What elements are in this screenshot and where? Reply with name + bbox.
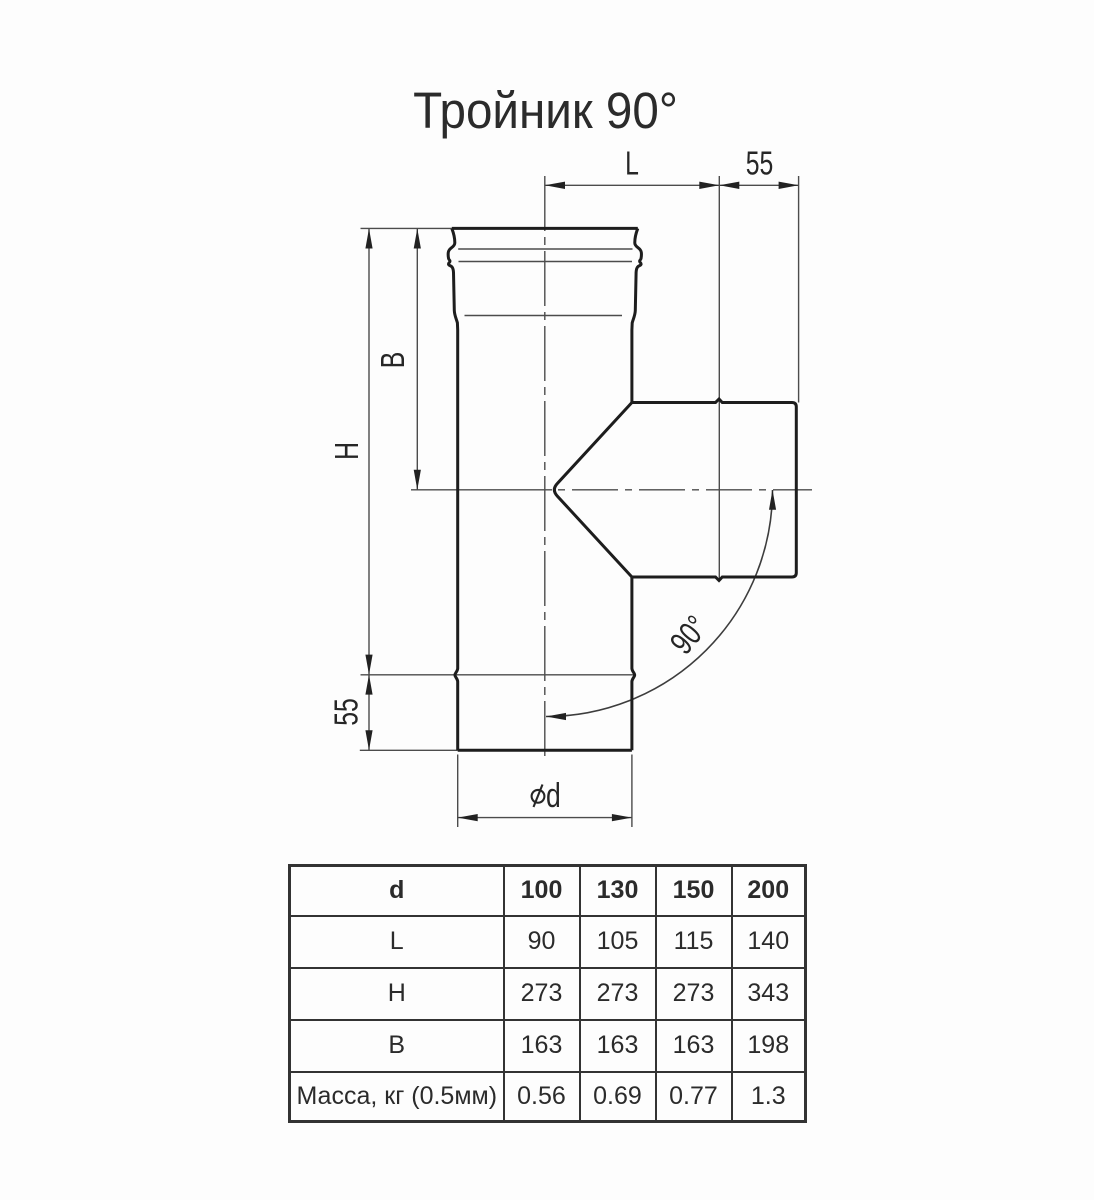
svg-text:L: L [625,146,639,182]
svg-text:B: B [376,352,412,369]
svg-text:55: 55 [329,698,365,726]
svg-text:H: H [330,442,366,460]
svg-text:90°: 90° [664,609,716,661]
svg-text:d: d [546,777,561,815]
svg-text:55: 55 [746,146,774,182]
